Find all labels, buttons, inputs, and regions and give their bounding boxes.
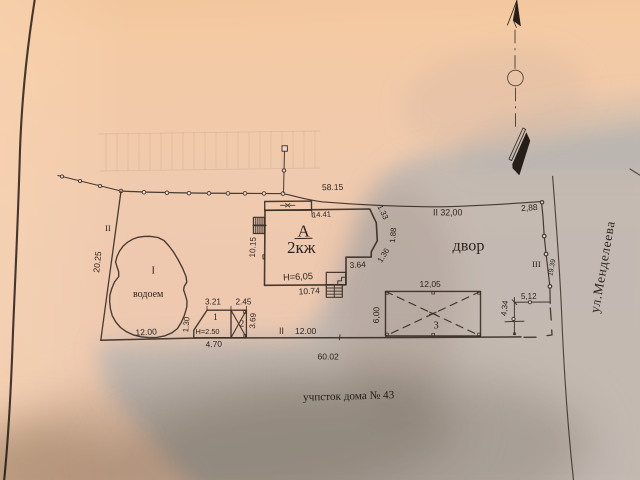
svg-text:12.00: 12.00 xyxy=(135,326,157,337)
svg-text:2: 2 xyxy=(240,320,245,330)
svg-text:10.74: 10.74 xyxy=(298,285,320,296)
svg-text:2.45: 2.45 xyxy=(236,298,252,307)
svg-text:1.88: 1.88 xyxy=(388,227,398,243)
svg-text:водоем: водоем xyxy=(133,289,164,300)
svg-text:II 32,00: II 32,00 xyxy=(433,208,462,218)
svg-text:3: 3 xyxy=(434,321,439,332)
svg-text:19.39: 19.39 xyxy=(547,258,557,276)
svg-text:12,05: 12,05 xyxy=(420,279,442,289)
svg-text:14.41: 14.41 xyxy=(312,209,331,219)
svg-text:1: 1 xyxy=(213,313,218,323)
svg-text:3.64: 3.64 xyxy=(349,259,366,270)
svg-text:1.36: 1.36 xyxy=(376,247,392,265)
svg-text:60.02: 60.02 xyxy=(318,352,340,362)
svg-text:2кж: 2кж xyxy=(287,238,316,257)
svg-text:А: А xyxy=(298,222,311,241)
svg-text:2,88: 2,88 xyxy=(521,202,538,213)
svg-text:4.70: 4.70 xyxy=(205,339,222,350)
svg-text:4,34: 4,34 xyxy=(499,300,510,317)
svg-text:I: I xyxy=(152,266,156,277)
svg-text:58.15: 58.15 xyxy=(322,182,344,192)
svg-text:3.69: 3.69 xyxy=(248,312,258,329)
svg-text:12.00: 12.00 xyxy=(295,326,317,336)
svg-text:II: II xyxy=(279,326,284,336)
svg-text:1.33: 1.33 xyxy=(375,203,390,221)
svg-text:10.15: 10.15 xyxy=(248,236,258,257)
svg-text:20.25: 20.25 xyxy=(91,251,103,273)
svg-text:5,12: 5,12 xyxy=(521,292,537,301)
svg-text:1.30: 1.30 xyxy=(181,316,191,333)
svg-text:ул.Менделеева: ул.Менделеева xyxy=(587,219,618,314)
svg-text:3.21: 3.21 xyxy=(205,298,221,307)
svg-text:Н=6,05: Н=6,05 xyxy=(283,271,313,283)
svg-text:учпсток дома № 43: учпсток дома № 43 xyxy=(303,389,395,403)
svg-text:III: III xyxy=(532,259,541,269)
svg-text:6,00: 6,00 xyxy=(371,306,382,323)
svg-text:Н=2.50: Н=2.50 xyxy=(196,327,220,336)
svg-text:II: II xyxy=(105,223,111,233)
svg-text:двор: двор xyxy=(453,237,485,255)
